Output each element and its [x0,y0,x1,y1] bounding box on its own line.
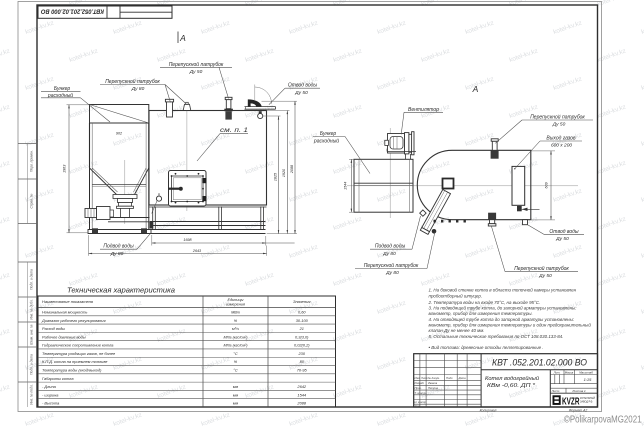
svg-text:2088: 2088 [296,401,306,406]
svg-text:Ду 80: Ду 80 [110,251,124,257]
svg-text:Масса: Масса [565,370,574,374]
svg-text:Котел водогрейный: Котел водогрейный [485,375,539,382]
svg-text:К.П.Д. котла на приемлем топли: К.П.Д. котла на приемлем топливе [42,359,108,364]
svg-text:- Длина: - Длина [42,384,57,389]
svg-text:©PolikarpovaMG2021: ©PolikarpovaMG2021 [564,414,642,425]
svg-text:клапан Ду не менее 40 мм.: клапан Ду не менее 40 мм. [429,328,485,333]
svg-text:Взам. инв. №: Взам. инв. № [30,324,34,345]
svg-text:мм: мм [233,402,239,406]
svg-text:Иванов: Иванов [428,381,438,385]
svg-text:2643: 2643 [192,249,202,253]
svg-text:КОТЕЛЬНЫЙ: КОТЕЛЬНЫЙ [580,397,595,400]
svg-text:пробоотборный штуцер.: пробоотборный штуцер. [429,293,483,299]
svg-text:Инв. № подл.: Инв. № подл. [30,384,34,405]
svg-text:измерения: измерения [226,303,245,307]
svg-text:Петров: Петров [428,386,439,390]
svg-text:2. Температура воды на входе: 2. Температура воды на входе 70°С, на вы… [428,300,541,305]
svg-text:КВм -0,60. ДП *: КВм -0,60. ДП * [487,383,536,389]
svg-text:Справ. №: Справ. № [30,193,34,208]
svg-text:1544: 1544 [344,182,348,190]
svg-text:Формат А2: Формат А2 [569,408,588,412]
svg-text:Лит.: Лит. [553,370,561,374]
svg-text:Ду 80: Ду 80 [385,270,399,276]
svg-text:МПа (кгс/см²): МПа (кгс/см²) [224,335,249,339]
svg-text:Подп. и дата: Подп. и дата [30,269,34,290]
svg-text:3. На подводящей трубе котла,: 3. На подводящей трубе котла, до запорно… [429,305,578,311]
svg-text:600 х 200: 600 х 200 [551,143,572,149]
svg-text:5. Остальные технические треб: 5. Остальные технические требования по О… [429,334,564,339]
svg-text:4. На отводящей трубе котла: 4. На отводящей трубе котла до запорной … [429,316,575,322]
svg-text:Выход газов: Выход газов [546,136,576,142]
svg-text:Вентилятор: Вентилятор [408,107,439,113]
svg-text:2642: 2642 [296,384,306,389]
svg-text:Диапазон рабочего регулировани: Диапазон рабочего регулирования [41,318,106,323]
svg-text:21: 21 [299,326,304,331]
svg-text:°С: °С [233,369,238,373]
svg-text:Номинальная мощность: Номинальная мощность [42,309,87,314]
svg-text:Н. контр.: Н. контр. [415,400,427,404]
svg-text:Перепускной патрубок: Перепускной патрубок [514,265,569,272]
svg-text:Изм. Лист: Изм. Лист [415,376,429,380]
svg-text:70-95: 70-95 [297,368,308,373]
svg-text:2088: 2088 [290,164,294,174]
svg-text:1825: 1825 [273,172,277,181]
svg-text:А: А [472,84,479,94]
svg-text:Техническая характеристика: Техническая характеристика [67,287,175,294]
svg-text:Лист: Лист [551,389,560,393]
svg-text:м³/ч: м³/ч [232,327,239,331]
svg-text:Ду 80: Ду 80 [131,86,145,92]
svg-text:- Высота: - Высота [42,401,60,406]
svg-text:°С: °С [233,352,238,356]
svg-text:Температура уходящих газов, не: Температура уходящих газов, не более [42,351,116,356]
svg-text:мм: мм [233,385,239,389]
svg-text:Перепускной патрубок: Перепускной патрубок [364,262,419,269]
svg-text:Перепускной патрубок: Перепускной патрубок [169,61,224,68]
svg-text:• Вид топлива: древесные от: • Вид топлива: древесные отходы пеллетир… [429,345,544,350]
svg-text:Отвод воды: Отвод воды [549,229,579,235]
svg-text:Разраб.: Разраб. [415,381,425,385]
svg-text:902: 902 [116,131,122,135]
svg-text:Подвод воды: Подвод воды [103,244,134,250]
svg-text:Расход воды: Расход воды [42,326,65,331]
svg-text:Масштаб: Масштаб [579,370,593,374]
svg-text:Подвод воды: Подвод воды [375,244,406,250]
svg-text:Гидравлическое сопротивление к: Гидравлическое сопротивление котла [42,343,114,348]
svg-text:1920: 1920 [282,168,286,177]
svg-text:Ду 50: Ду 50 [189,69,203,75]
svg-text:1544: 1544 [297,392,306,397]
svg-text:Листов 1: Листов 1 [571,389,586,393]
svg-text:№ докум.: № докум. [428,376,440,380]
svg-text:230: 230 [298,351,306,356]
svg-text:Перепускной патрубок: Перепускной патрубок [530,114,585,121]
svg-text:Ду 50: Ду 50 [538,273,552,279]
svg-text:манометр, прибор для измерени: манометр, прибор для измерения температу… [429,322,592,328]
svg-text:манометр, прибор для измерени: манометр, прибор для измерения температу… [429,311,533,316]
svg-text:Ду 50: Ду 50 [552,122,566,128]
svg-text:Т. контр.: Т. контр. [415,391,427,395]
svg-text:0,02(0,2): 0,02(0,2) [294,343,310,348]
svg-text:Дата: Дата [458,376,467,380]
svg-text:Перепускной патрубок: Перепускной патрубок [105,78,160,85]
svg-text:МВт: МВт [231,310,240,314]
svg-text:ЗАВОД Р.Ф.: ЗАВОД Р.Ф. [580,401,593,404]
svg-text:Бункер: Бункер [54,86,71,92]
svg-text:КВТ.052.201.02.000 ВО: КВТ.052.201.02.000 ВО [41,8,104,15]
svg-text:1:15: 1:15 [584,377,593,382]
svg-text:Единицы: Единицы [228,298,244,302]
svg-text:Значения: Значения [293,299,311,304]
svg-text:Рабочее давление воды: Рабочее давление воды [42,334,86,339]
svg-text:1. На боковой стенке котла в: 1. На боковой стенке котла в области топ… [429,286,577,292]
svg-text:МПа (кгс/см²): МПа (кгс/см²) [224,344,249,348]
svg-text:Температура воды (вход/выход): Температура воды (вход/выход) [42,368,102,373]
svg-text:Ду 50: Ду 50 [294,90,308,96]
svg-text:Отвод воды: Отвод воды [288,83,318,89]
svg-text:Наименование показателя: Наименование показателя [42,299,94,304]
svg-text:Копировал: Копировал [480,408,497,412]
svg-text:0,60: 0,60 [298,309,306,314]
svg-text:КВТ .052.201.02.000 ВО: КВТ .052.201.02.000 ВО [492,357,588,368]
svg-text:1963: 1963 [63,164,67,173]
svg-text:Бункер: Бункер [320,131,337,137]
svg-text:Перв. примен.: Перв. примен. [30,150,34,172]
svg-text:- ширина: - ширина [42,392,59,397]
svg-text:Ду 80: Ду 80 [382,251,396,257]
svg-text:609: 609 [545,182,549,188]
svg-text:Подп. и дата: Подп. и дата [30,354,34,375]
svg-text:KVZR: KVZR [562,397,580,408]
svg-text:0,3(3,0): 0,3(3,0) [295,334,309,339]
svg-text:А: А [179,33,186,43]
svg-text:расходный: расходный [313,137,339,144]
svg-text:Подп.: Подп. [446,376,453,380]
svg-text:см. п. 1: см. п. 1 [220,127,249,134]
svg-text:Габариты котла: Габариты котла [42,376,74,381]
svg-text:Пров.: Пров. [415,386,422,390]
svg-text:Ду 50: Ду 50 [555,236,569,242]
svg-text:1698: 1698 [183,238,192,242]
svg-text:мм: мм [233,393,239,397]
svg-text:Утв.: Утв. [415,404,421,408]
svg-text:Инв. № дубл.: Инв. № дубл. [30,299,34,319]
svg-text:30-100: 30-100 [296,318,309,323]
